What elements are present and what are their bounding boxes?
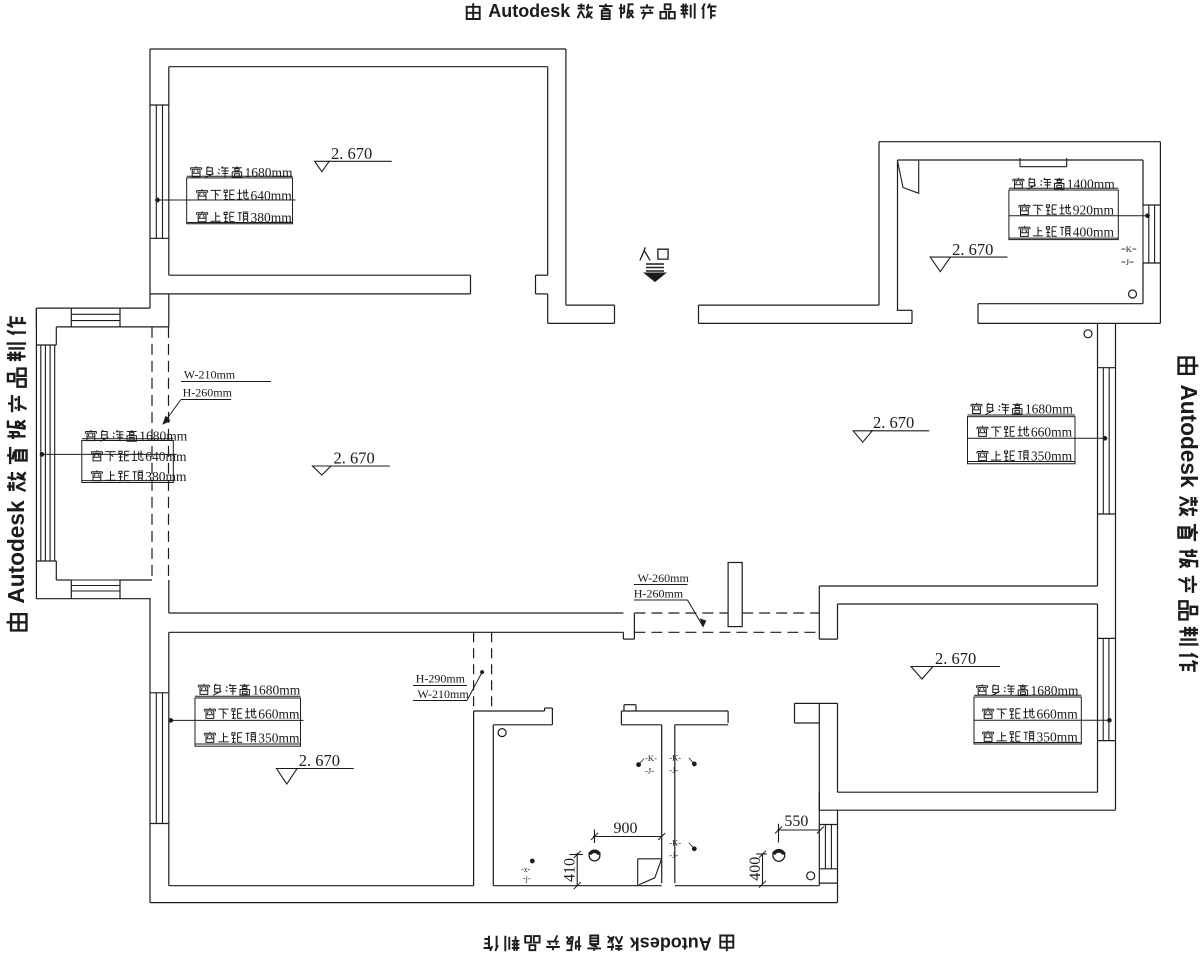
svg-text:2. 670: 2. 670 xyxy=(331,144,372,163)
svg-text:=K=: =K= xyxy=(1121,244,1137,254)
svg-text:2. 670: 2. 670 xyxy=(952,240,993,259)
svg-text:Autodesk: Autodesk xyxy=(488,1,571,21)
svg-text:H-260mm: H-260mm xyxy=(183,386,233,400)
svg-text:-j-: -j- xyxy=(523,874,531,883)
svg-text:660mm: 660mm xyxy=(1031,425,1073,440)
svg-text:660mm: 660mm xyxy=(1037,707,1079,722)
svg-text:W-210mm: W-210mm xyxy=(417,687,469,701)
svg-text:H-290mm: H-290mm xyxy=(416,672,466,686)
svg-text:1680mm: 1680mm xyxy=(252,683,301,698)
svg-text:350mm: 350mm xyxy=(258,731,300,746)
svg-text:-K-: -K- xyxy=(669,837,681,847)
svg-text:550: 550 xyxy=(784,813,808,830)
svg-text:W-260mm: W-260mm xyxy=(638,571,690,585)
svg-text:660mm: 660mm xyxy=(258,707,300,722)
svg-text:Autodesk: Autodesk xyxy=(3,500,29,604)
svg-text:-J-: -J- xyxy=(645,766,654,776)
svg-text:H-260mm: H-260mm xyxy=(634,587,684,601)
svg-text:-K-: -K- xyxy=(645,753,657,763)
svg-text:1680mm: 1680mm xyxy=(1025,402,1074,417)
svg-text:2. 670: 2. 670 xyxy=(299,751,340,770)
svg-text:640mm: 640mm xyxy=(251,188,293,203)
svg-text:-J-: -J- xyxy=(669,765,678,775)
svg-text:1680mm: 1680mm xyxy=(139,429,188,444)
svg-text:-x-: -x- xyxy=(521,865,531,874)
svg-text:400: 400 xyxy=(747,857,764,881)
svg-text:2. 670: 2. 670 xyxy=(334,449,375,468)
svg-text:W-210mm: W-210mm xyxy=(184,368,236,382)
svg-text:400mm: 400mm xyxy=(1073,225,1115,240)
svg-text:640mm: 640mm xyxy=(145,449,187,464)
svg-text:-J-: -J- xyxy=(669,850,678,860)
svg-text:900: 900 xyxy=(614,820,638,837)
svg-text:Autodesk: Autodesk xyxy=(629,934,712,954)
svg-text:2. 670: 2. 670 xyxy=(873,413,914,432)
svg-text:-K-: -K- xyxy=(669,752,681,762)
svg-text:410: 410 xyxy=(562,858,579,882)
svg-text:Autodesk: Autodesk xyxy=(1176,384,1200,488)
svg-text:1400mm: 1400mm xyxy=(1067,176,1116,191)
svg-text:2. 670: 2. 670 xyxy=(935,649,976,668)
svg-text:380mm: 380mm xyxy=(145,469,187,484)
svg-text:=J=: =J= xyxy=(1121,257,1134,267)
